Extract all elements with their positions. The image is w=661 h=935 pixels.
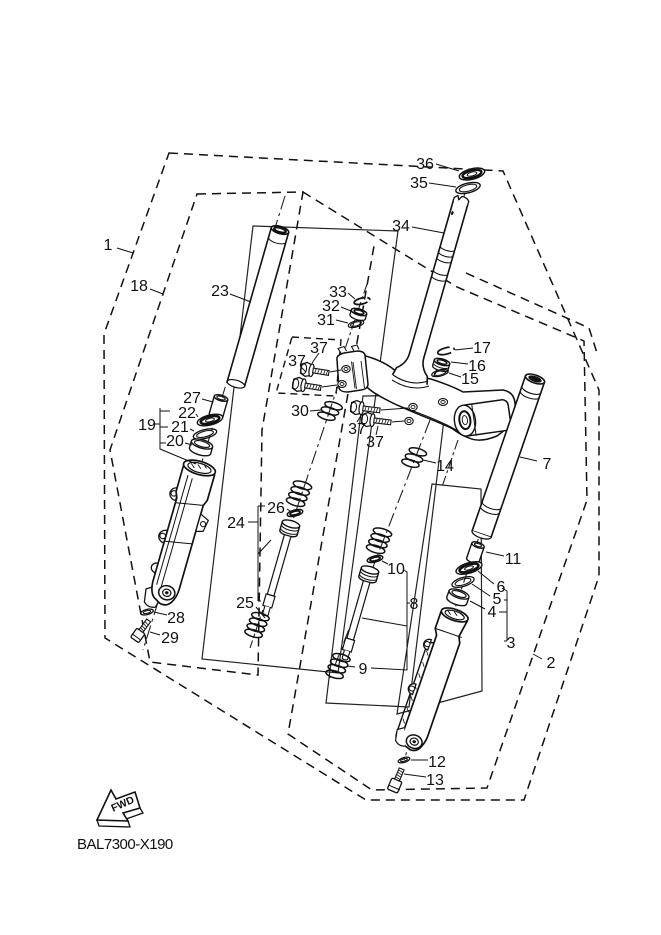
svg-text:37: 37 [348,421,366,438]
svg-text:28: 28 [167,610,185,627]
svg-text:36: 36 [416,156,434,173]
svg-text:3: 3 [507,635,516,652]
svg-text:37: 37 [310,340,328,357]
svg-text:35: 35 [410,175,428,192]
svg-text:13: 13 [426,772,444,789]
svg-text:14: 14 [436,458,454,475]
svg-text:11: 11 [505,551,522,568]
svg-text:26: 26 [267,500,285,517]
svg-text:23: 23 [211,283,229,300]
svg-text:30: 30 [291,403,309,420]
svg-text:25: 25 [236,595,254,612]
svg-text:10: 10 [387,561,405,578]
svg-text:2: 2 [547,655,556,672]
svg-text:24: 24 [227,515,245,532]
svg-text:12: 12 [428,754,446,771]
svg-text:7: 7 [543,456,552,473]
svg-text:37: 37 [366,434,384,451]
svg-text:4: 4 [488,604,497,621]
svg-text:17: 17 [473,340,491,357]
svg-text:16: 16 [468,358,486,375]
svg-text:8: 8 [410,596,419,613]
svg-text:20: 20 [166,433,184,450]
svg-text:29: 29 [161,630,179,647]
svg-text:1: 1 [104,237,113,254]
svg-text:33: 33 [329,284,347,301]
svg-text:18: 18 [130,278,148,295]
svg-text:BAL7300-X190: BAL7300-X190 [77,836,173,853]
svg-text:19: 19 [138,417,156,434]
svg-text:9: 9 [359,661,368,678]
svg-text:34: 34 [392,218,410,235]
svg-text:37: 37 [288,353,306,370]
